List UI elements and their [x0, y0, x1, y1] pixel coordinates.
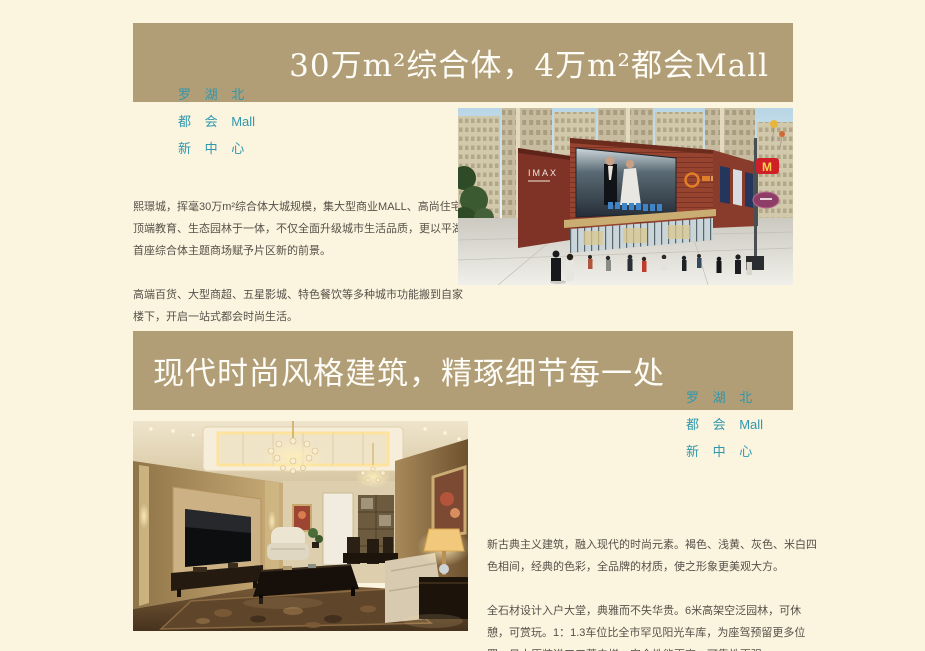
section1-location-label: 罗 湖 北 都 会 Mall 新 中 心	[178, 81, 255, 162]
floor-light-pool	[243, 597, 323, 609]
dining-set	[343, 537, 398, 564]
pilaster	[139, 465, 149, 606]
balloon	[779, 131, 785, 137]
location-label-line: 都 会 Mall	[178, 108, 255, 135]
section2-headline: 现代时尚风格建筑，精琢细节每一处	[153, 348, 665, 393]
living-room-art	[133, 421, 468, 631]
imax-sign-text: IMAX	[528, 168, 558, 178]
section1-paragraph-1: 熙璟城，挥毫30万m²综合体大城规模，集大型商业MALL、高尚住宅、 顶端教育、…	[133, 196, 481, 262]
location-label-line: 新 中 心	[178, 135, 255, 162]
section2-body-copy: 新古典主义建筑，融入现代的时尚元素。褐色、浅黄、灰色、米白四 色相间，经典的色彩…	[487, 512, 835, 651]
section2-paragraph-1: 新古典主义建筑，融入现代的时尚元素。褐色、浅黄、灰色、米白四 色相间，经典的色彩…	[487, 534, 835, 578]
section2-location-label: 罗 湖 北 都 会 Mall 新 中 心	[686, 384, 763, 465]
balloon	[770, 120, 778, 128]
wall-sconce	[139, 503, 149, 529]
mcdonalds-m-logo: M	[762, 160, 772, 174]
location-label-line: 罗 湖 北	[178, 81, 255, 108]
armchair	[267, 527, 309, 560]
section1-headline: 30万m²综合体，4万m²都会Mall	[289, 40, 769, 85]
location-label-line: 罗 湖 北	[686, 384, 763, 411]
location-label-line: 都 会 Mall	[686, 411, 763, 438]
billboard	[576, 148, 676, 217]
billboard-woman	[626, 160, 634, 168]
mall-rendering-image: IMAX	[458, 108, 793, 285]
floor-light-pool	[403, 614, 463, 628]
section2-paragraph-2: 全石材设计入户大堂，典雅而不失华贵。6米高架空泛园林，可休 憩，可赏玩。1：1.…	[487, 600, 835, 651]
imax-sign-sub	[528, 180, 550, 182]
location-label-line: 新 中 心	[686, 438, 763, 465]
brochure-page: 30万m²综合体，4万m²都会Mall 罗 湖 北 都 会 Mall 新 中 心…	[0, 0, 925, 651]
living-room-image	[133, 421, 468, 631]
section1-paragraph-2: 高端百货、大型商超、五星影城、特色餐饮等多种城市功能搬到自家 楼下，开启一站式都…	[133, 284, 481, 328]
mall-rendering-art: IMAX	[458, 108, 793, 285]
section1-body-copy: 熙璟城，挥毫30万m²综合体大城规模，集大型商业MALL、高尚住宅、 顶端教育、…	[133, 174, 481, 350]
